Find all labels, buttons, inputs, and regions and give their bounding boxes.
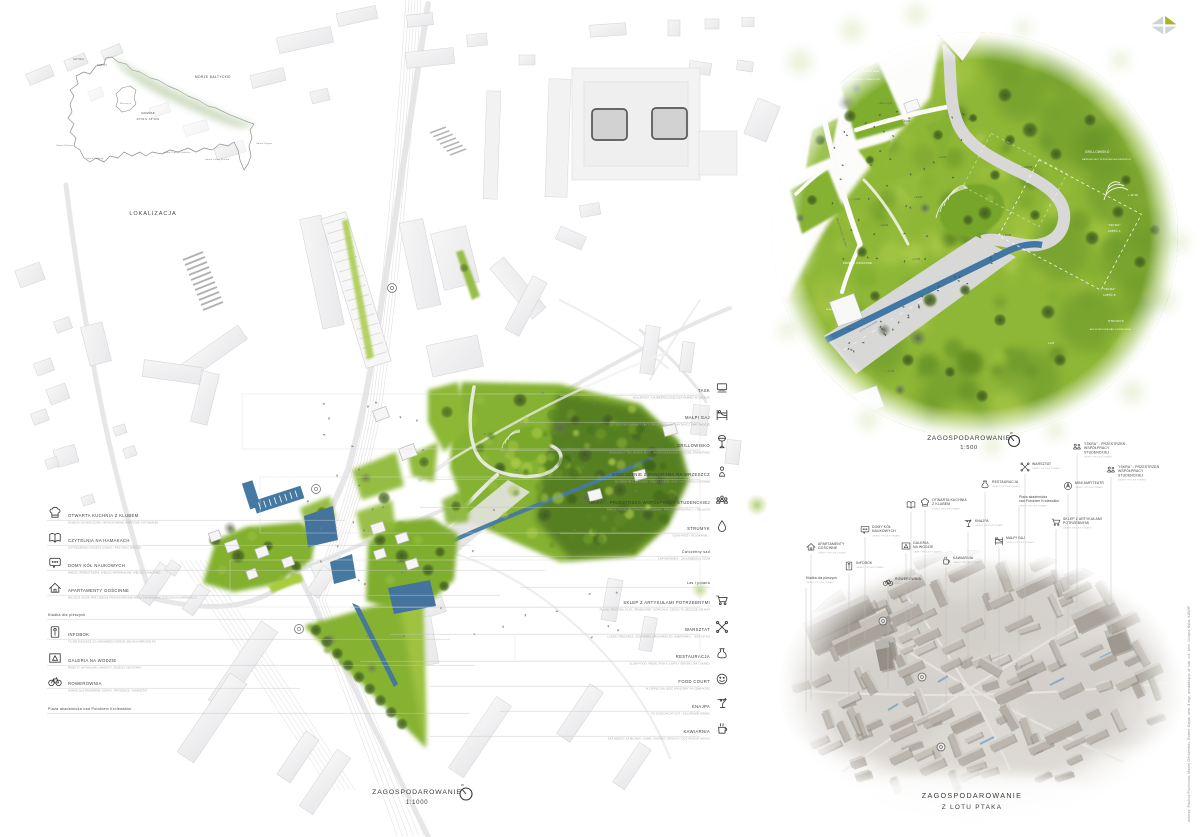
svg-text:MORZE BAŁTYCKIE: MORZE BAŁTYCKIE <box>195 75 231 79</box>
svg-text:RESTAURACJA: RESTAURACJA <box>992 480 1019 484</box>
svg-text:ZAGOSPODAROWANIE: ZAGOSPODAROWANIE <box>927 435 1011 442</box>
svg-text:GOŚCINNE: GOŚCINNE <box>818 545 838 550</box>
svg-text:1:500: 1:500 <box>960 445 978 451</box>
svg-text:NA WODZIE: NA WODZIE <box>913 545 934 549</box>
svg-text:STUDENCKIEJ: STUDENCKIEJ <box>1084 450 1109 454</box>
svg-text:nad Potokiem Królewskim: nad Potokiem Królewskim <box>1019 499 1059 503</box>
svg-text:OBIEKT PROJEKTOWANY: OBIEKT PROJEKTOWANY <box>975 524 1004 527</box>
svg-text:SLOW FOOD, WEGE, FISH & CHIPS: SLOW FOOD, WEGE, FISH & CHIPS I OBIADKI … <box>629 662 710 666</box>
svg-text:Wrzeszcz: Wrzeszcz <box>120 102 131 105</box>
svg-text:OBIEKT PROJEKTOWANY: OBIEKT PROJEKTOWANY <box>953 561 982 564</box>
svg-text:Las i polana: Las i polana <box>687 581 710 585</box>
svg-text:Z KLUBEM: Z KLUBEM <box>932 502 950 506</box>
svg-text:ZAGOSPODAROWANIE: ZAGOSPODAROWANIE <box>922 791 1022 800</box>
svg-text:OBIEKT PROJEKTOWANY: OBIEKT PROJEKTOWANY <box>992 485 1021 488</box>
svg-text:ZESTRESOWANY? ZBYT ZRELAKSOWAN: ZESTRESOWANY? ZBYT ZRELAKSOWANY? WYSKACZ… <box>616 423 710 427</box>
svg-text:GRILLOWISKO: GRILLOWISKO <box>677 443 711 448</box>
svg-text:TASK: TASK <box>698 388 710 393</box>
svg-text:Gmina Pruszcz Gdański: Gmina Pruszcz Gdański <box>163 151 191 154</box>
svg-text:OBIEKT PROJEKTOWANY: OBIEKT PROJEKTOWANY <box>806 581 835 584</box>
svg-text:KAWIARNIA: KAWIARNIA <box>684 729 711 734</box>
svg-text:TU SIĘ DOWIESZ CO CIEKAWEGO DZ: TU SIĘ DOWIESZ CO CIEKAWEGO DZIEJE SIĘ N… <box>68 640 156 644</box>
svg-text:ROWEROWNIA: ROWEROWNIA <box>895 577 922 581</box>
svg-text:"ISKRA" - PRZESTRZEŃ WSPÓŁPRAC: "ISKRA" - PRZESTRZEŃ WSPÓŁPRACY STUDENCK… <box>587 500 710 505</box>
svg-text:OBIEKT PROJEKTOWANY: OBIEKT PROJEKTOWANY <box>818 551 847 554</box>
svg-text:APARTAMENTY GOŚCINNE: APARTAMENTY GOŚCINNE <box>68 588 129 593</box>
svg-text:KNAJPA: KNAJPA <box>975 519 989 523</box>
svg-text:OBIEKT PROJEKTOWANY: OBIEKT PROJEKTOWANY <box>1084 456 1113 459</box>
svg-text:W: W <box>461 783 464 787</box>
svg-text:WARSZTAT: WARSZTAT <box>1032 462 1051 466</box>
svg-text:DOMY KÓŁ NAUKOWYCH: DOMY KÓŁ NAUKOWYCH <box>68 563 125 568</box>
svg-text:KAWIARNIA: KAWIARNIA <box>953 556 974 560</box>
svg-text:MINI AMFITEATR: MINI AMFITEATR <box>1075 481 1104 485</box>
svg-text:GDAŃSK: GDAŃSK <box>141 111 155 115</box>
svg-text:OBIEKT PROJEKTOWANY: OBIEKT PROJEKTOWANY <box>1075 486 1104 489</box>
svg-text:OBIEKT PROJEKTOWANY: OBIEKT PROJEKTOWANY <box>913 550 942 553</box>
svg-text:1:1000: 1:1000 <box>406 800 429 806</box>
svg-text:ZAGOSPODAROWANIE: ZAGOSPODAROWANIE <box>372 789 462 796</box>
svg-text:POTRZEBNYMI: POTRZEBNYMI <box>1063 521 1089 525</box>
svg-text:Kładka dla pieszych: Kładka dla pieszych <box>806 576 837 580</box>
svg-text:SOPOT: SOPOT <box>97 63 107 67</box>
svg-text:STUDENCKIEJ: STUDENCKIEJ <box>1118 473 1143 477</box>
svg-text:INFOBOK: INFOBOK <box>856 561 873 565</box>
svg-text:KNAJPA: KNAJPA <box>692 704 710 709</box>
svg-text:KINO LETNIE Z PANORAMĄ NA WRZE: KINO LETNIE Z PANORAMĄ NA WRZESZCZ <box>612 472 710 477</box>
svg-text:NAUKOWYCH: NAUKOWYCH <box>872 529 896 533</box>
svg-text:autorzy: Paulina Puchnicka, Ma: autorzy: Paulina Puchnicka, Maciej Gersz… <box>1187 605 1191 822</box>
svg-text:INFOBOK: INFOBOK <box>68 632 89 637</box>
svg-text:W: W <box>1010 431 1013 435</box>
svg-text:RESTAURACJA: RESTAURACJA <box>676 654 710 659</box>
svg-text:SZUM WODY, PLUSKANIE...: SZUM WODY, PLUSKANIE... <box>673 534 711 538</box>
svg-text:OBIEKT PROJEKTOWANY: OBIEKT PROJEKTOWANY <box>1032 467 1061 470</box>
svg-text:OTWARTA KUCHNIA Z KLUBEM: OTWARTA KUCHNIA Z KLUBEM <box>68 513 139 518</box>
svg-text:CZYTELNIA NA HAMAKACH: CZYTELNIA NA HAMAKACH <box>68 538 130 543</box>
svg-text:OBIEKT PROJEKTOWANY: OBIEKT PROJEKTOWANY <box>1118 479 1147 482</box>
svg-text:Plaża akademicka nad Potokiem: Plaża akademicka nad Potokiem Królewskim <box>48 707 132 711</box>
svg-text:Gmina Żukowo: Gmina Żukowo <box>56 144 74 147</box>
svg-text:LASER, FREZARKA, SZLIFIERKI, D: LASER, FREZARKA, SZLIFIERKI, DRUKARKA 3D… <box>607 635 710 639</box>
svg-text:LOKALIZACJA: LOKALIZACJA <box>129 211 176 217</box>
svg-text:Gmina Cedry Wielkie: Gmina Cedry Wielkie <box>205 158 230 161</box>
svg-text:ROWEROWNIA: ROWEROWNIA <box>68 681 102 686</box>
svg-text:MAŁPI GAJ: MAŁPI GAJ <box>685 415 710 420</box>
svg-text:Z LOTU PTAKA: Z LOTU PTAKA <box>942 804 1003 811</box>
svg-text:PO ZAJĘCIACH? CO? - KOLOROWE D: PO ZAJĘCIACH? CO? - KOLOROWE DRINKI <box>651 712 710 716</box>
svg-text:OBIEKT PROJEKTOWANY: OBIEKT PROJEKTOWANY <box>1063 526 1092 529</box>
svg-text:Gmina Stegna: Gmina Stegna <box>256 142 273 145</box>
svg-text:STRUMYK: STRUMYK <box>687 526 710 531</box>
svg-text:SKLEP Z ARTYKUŁAMI POTRZEBNYMI: SKLEP Z ARTYKUŁAMI POTRZEBNYMI <box>623 600 710 605</box>
svg-text:OBIEKT PROJEKTOWANY: OBIEKT PROJEKTOWANY <box>856 566 885 569</box>
svg-text:OBIEKT PROJEKTOWANY: OBIEKT PROJEKTOWANY <box>932 507 961 510</box>
svg-text:Ćwiczebny sad: Ćwiczebny sad <box>682 549 710 554</box>
svg-text:WARSZTAT: WARSZTAT <box>685 627 710 632</box>
svg-text:54°04'N, 18°40'E: 54°04'N, 18°40'E <box>137 117 160 121</box>
svg-text:FOOD COURT: FOOD COURT <box>678 679 710 684</box>
svg-text:ROBOTY, WYNALAZKI, MAKIETY, ZD: ROBOTY, WYNALAZKI, MAKIETY, ZDJĘCIA I WY… <box>68 666 142 670</box>
svg-text:OBIEKT PROJEKTOWANY: OBIEKT PROJEKTOWANY <box>1006 541 1035 544</box>
svg-text:OBIEKT PROJEKTOWANY: OBIEKT PROJEKTOWANY <box>1019 504 1048 507</box>
svg-text:Gmina Kolbudy: Gmina Kolbudy <box>86 158 104 160</box>
svg-text:Kładka dla pieszych: Kładka dla pieszych <box>48 613 86 617</box>
svg-text:MAŁPI GAJ: MAŁPI GAJ <box>1006 536 1025 540</box>
svg-text:OBIEKT PROJEKTOWANY: OBIEKT PROJEKTOWANY <box>872 534 901 537</box>
svg-text:OBIEKT PROJEKTOWANY: OBIEKT PROJEKTOWANY <box>895 582 924 585</box>
svg-text:GALERIA NA WODZIE: GALERIA NA WODZIE <box>68 658 117 663</box>
svg-text:GDYNIA: GDYNIA <box>73 57 84 61</box>
